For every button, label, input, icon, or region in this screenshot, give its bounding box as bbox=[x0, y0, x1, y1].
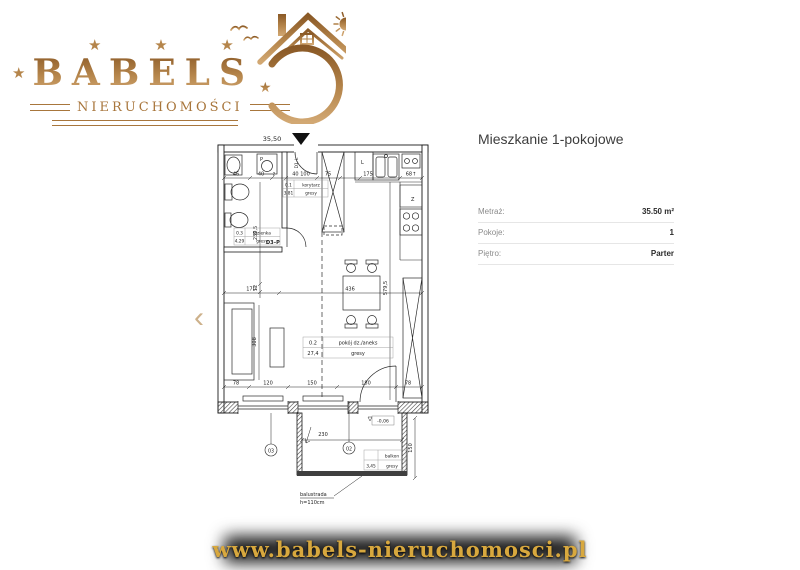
detail-row-metraz: Metraż: 35.50 m² bbox=[478, 202, 674, 223]
balcony: 03 02 230 150 -0,06 balkon 3,45 gresy ba… bbox=[265, 402, 417, 506]
detail-value: 35.50 m² bbox=[642, 207, 674, 216]
washer-label: P bbox=[260, 157, 263, 163]
dim-120: 120 bbox=[263, 381, 273, 387]
coffee-table bbox=[270, 328, 284, 367]
star-icon: ★ bbox=[259, 79, 272, 95]
detail-label: Pokoje: bbox=[478, 228, 505, 237]
kitchen-sink bbox=[373, 154, 399, 180]
radiator bbox=[243, 396, 283, 401]
chair bbox=[345, 260, 378, 328]
stove bbox=[400, 209, 422, 235]
website-url: www.babels-nieruchomosci.pl bbox=[212, 537, 587, 562]
dim-308: 308 bbox=[252, 337, 258, 347]
window bbox=[298, 401, 348, 414]
window bbox=[238, 401, 288, 414]
detail-value: 1 bbox=[670, 228, 674, 237]
dim-579-5: 579,5 bbox=[383, 281, 389, 295]
dim-75: 75 bbox=[325, 172, 331, 178]
marker-o3: 03 bbox=[268, 448, 274, 454]
fridge-label: L bbox=[361, 160, 364, 166]
dim-46: 46 bbox=[233, 172, 239, 178]
balustrade-label-2: h=110cm bbox=[300, 500, 325, 506]
bird-icon bbox=[231, 26, 247, 30]
chimney bbox=[278, 14, 286, 36]
hall-area: 3,81 bbox=[284, 191, 294, 197]
detail-row-pokoje: Pokoje: 1 bbox=[478, 223, 674, 244]
floor-plan: 46 40 2 40 100 75 175 68↑ 239,5 12 170 4… bbox=[210, 130, 440, 520]
crescent-icon bbox=[272, 48, 339, 122]
balcony-width: 230 bbox=[318, 432, 328, 438]
bathroom-door-arc bbox=[287, 228, 306, 247]
room-label-texts: 0.1 korytarz 3,81 gresy 0.3 łazienka 4,2… bbox=[235, 183, 378, 358]
page-title: Mieszkanie 1-pokojowe bbox=[478, 131, 624, 147]
doors bbox=[287, 152, 396, 402]
dishwasher bbox=[400, 185, 422, 207]
wardrobe bbox=[322, 152, 344, 235]
bird-icon bbox=[244, 37, 258, 40]
dim-68: 68↑ bbox=[406, 172, 417, 178]
bathroom-fixtures bbox=[225, 154, 277, 228]
dim-2: 2 bbox=[273, 172, 276, 177]
couch bbox=[224, 303, 254, 380]
dim-40: 40 bbox=[258, 172, 264, 178]
dim-180: 180 bbox=[361, 381, 371, 387]
door-d3-label: D3–P bbox=[266, 240, 280, 246]
detail-label: Piętro: bbox=[478, 249, 501, 258]
dim-78a: 78 bbox=[233, 381, 239, 387]
marker-o2: 02 bbox=[346, 446, 352, 452]
radiator bbox=[303, 396, 343, 401]
dim-436: 436 bbox=[345, 287, 355, 293]
detail-label: Metraż: bbox=[478, 207, 505, 216]
tagline-line-left bbox=[30, 104, 70, 111]
exterior-walls bbox=[218, 145, 428, 413]
balustrade-label-1: balustrada bbox=[300, 492, 327, 498]
dimension-labels: 46 40 2 40 100 75 175 68↑ 239,5 12 170 4… bbox=[233, 172, 416, 387]
dim-170: 170 bbox=[246, 287, 256, 293]
room-area: 27,4 bbox=[307, 351, 318, 357]
balcony-name: balkon bbox=[385, 454, 400, 460]
entrance-marker-icon bbox=[292, 133, 310, 145]
house-crescent-icon: ★ bbox=[228, 4, 346, 124]
logo-subtitle: NIERUCHOMOŚCI bbox=[77, 100, 243, 115]
balcony-depth: 150 bbox=[408, 443, 414, 453]
hall-name: korytarz bbox=[302, 183, 320, 189]
level-label: -0,06 bbox=[377, 419, 389, 425]
star-icon: ★ bbox=[12, 64, 25, 82]
bidet bbox=[230, 213, 248, 228]
bath-area: 4,29 bbox=[235, 239, 245, 245]
dishwasher-label: Z bbox=[411, 197, 415, 203]
logo-brand-text: BABELS bbox=[32, 52, 254, 94]
room-floor: gresy bbox=[351, 351, 365, 357]
logo-wordmark: ★ BABELS bbox=[12, 52, 254, 94]
logo-underline bbox=[52, 120, 238, 126]
toilet-bowl bbox=[231, 184, 249, 200]
balcony-floor: gresy bbox=[386, 464, 398, 470]
room-number: 0.2 bbox=[309, 341, 317, 347]
chevron-left-icon[interactable]: ‹ bbox=[194, 303, 204, 333]
balustrade bbox=[297, 471, 407, 476]
bath-name: łazienka bbox=[253, 231, 271, 237]
property-details: Metraż: 35.50 m² Pokoje: 1 Piętro: Parte… bbox=[478, 202, 674, 265]
babels-logo: ★ ★ ★ ★ BABELS NIERUCHOMOŚCI bbox=[0, 0, 370, 132]
room-labels bbox=[234, 180, 393, 358]
kitchen-fixtures bbox=[355, 152, 422, 260]
furniture bbox=[224, 152, 422, 401]
room-name: pokój dz./aneks bbox=[339, 340, 378, 347]
sun-icon bbox=[340, 18, 347, 31]
hall-number: 0.1 bbox=[285, 183, 292, 189]
door-d1-label: D1–L bbox=[294, 157, 300, 169]
dim-175: 175 bbox=[363, 172, 373, 178]
detail-row-pietro: Piętro: Parter bbox=[478, 244, 674, 265]
bath-number: 0.3 bbox=[236, 231, 243, 237]
balcony-door bbox=[358, 401, 398, 414]
total-area-label: 35,50 bbox=[263, 135, 282, 143]
detail-value: Parter bbox=[651, 249, 674, 258]
dim-78b: 78 bbox=[405, 381, 411, 387]
footer-banner: www.babels-nieruchomosci.pl bbox=[0, 529, 800, 570]
dim-150: 150 bbox=[307, 381, 317, 387]
hall-floor: gresy bbox=[305, 191, 317, 197]
balcony-area: 3,45 bbox=[366, 464, 376, 470]
dim-40-100: 40 100 bbox=[292, 172, 310, 178]
